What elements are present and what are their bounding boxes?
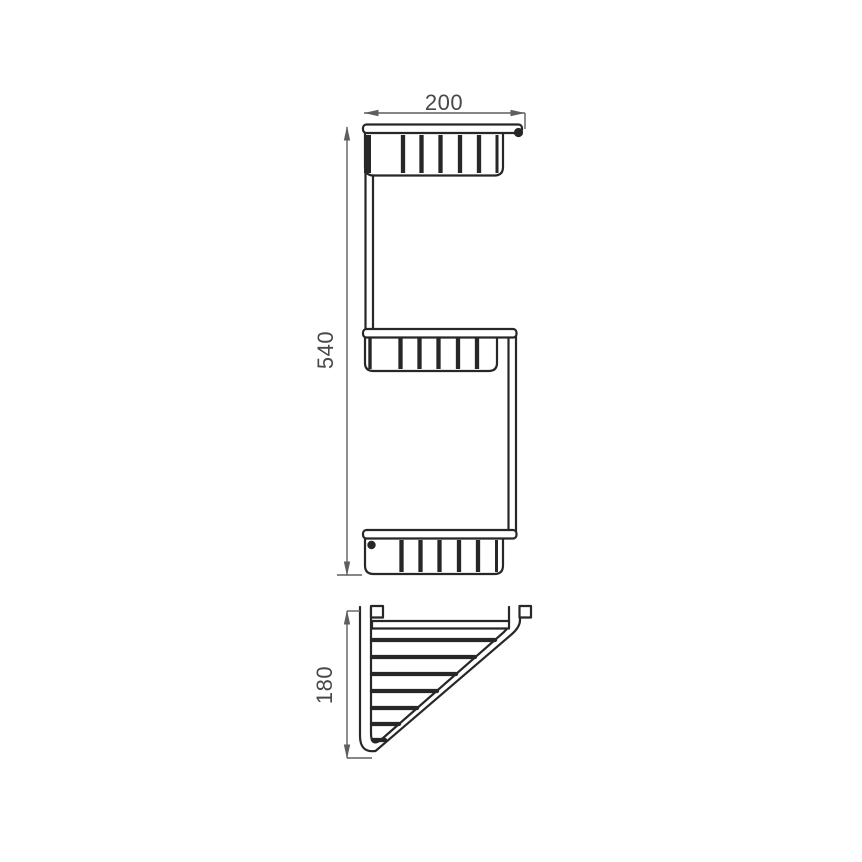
- mounting-tab-left: [371, 606, 383, 618]
- wall-anchor-dot: [367, 541, 375, 549]
- bottom-basket-hanging-rail: [363, 530, 517, 539]
- top-basket-hanging-rail: [363, 125, 522, 134]
- bottom-basket: [363, 530, 517, 574]
- right-connector-rail: [509, 334, 517, 534]
- top-basket: [363, 125, 523, 176]
- depth-dimension-label: 180: [312, 666, 337, 704]
- basket-corner-post: [364, 135, 371, 173]
- bottom-basket-body: [365, 538, 503, 574]
- middle-basket-hanging-rail: [363, 329, 517, 338]
- top-basket-body: [365, 133, 503, 176]
- middle-basket: [363, 329, 517, 371]
- technical-drawing-page: 200 540 180: [0, 0, 862, 862]
- height-dimension-label: 540: [313, 331, 338, 369]
- width-dimension-label: 200: [425, 90, 463, 115]
- plan-back-rail: [372, 621, 509, 629]
- corner-basket-dimension-drawing: 200 540 180: [0, 0, 862, 862]
- mounting-tab-right: [520, 606, 532, 618]
- wall-anchor-dot: [514, 128, 523, 137]
